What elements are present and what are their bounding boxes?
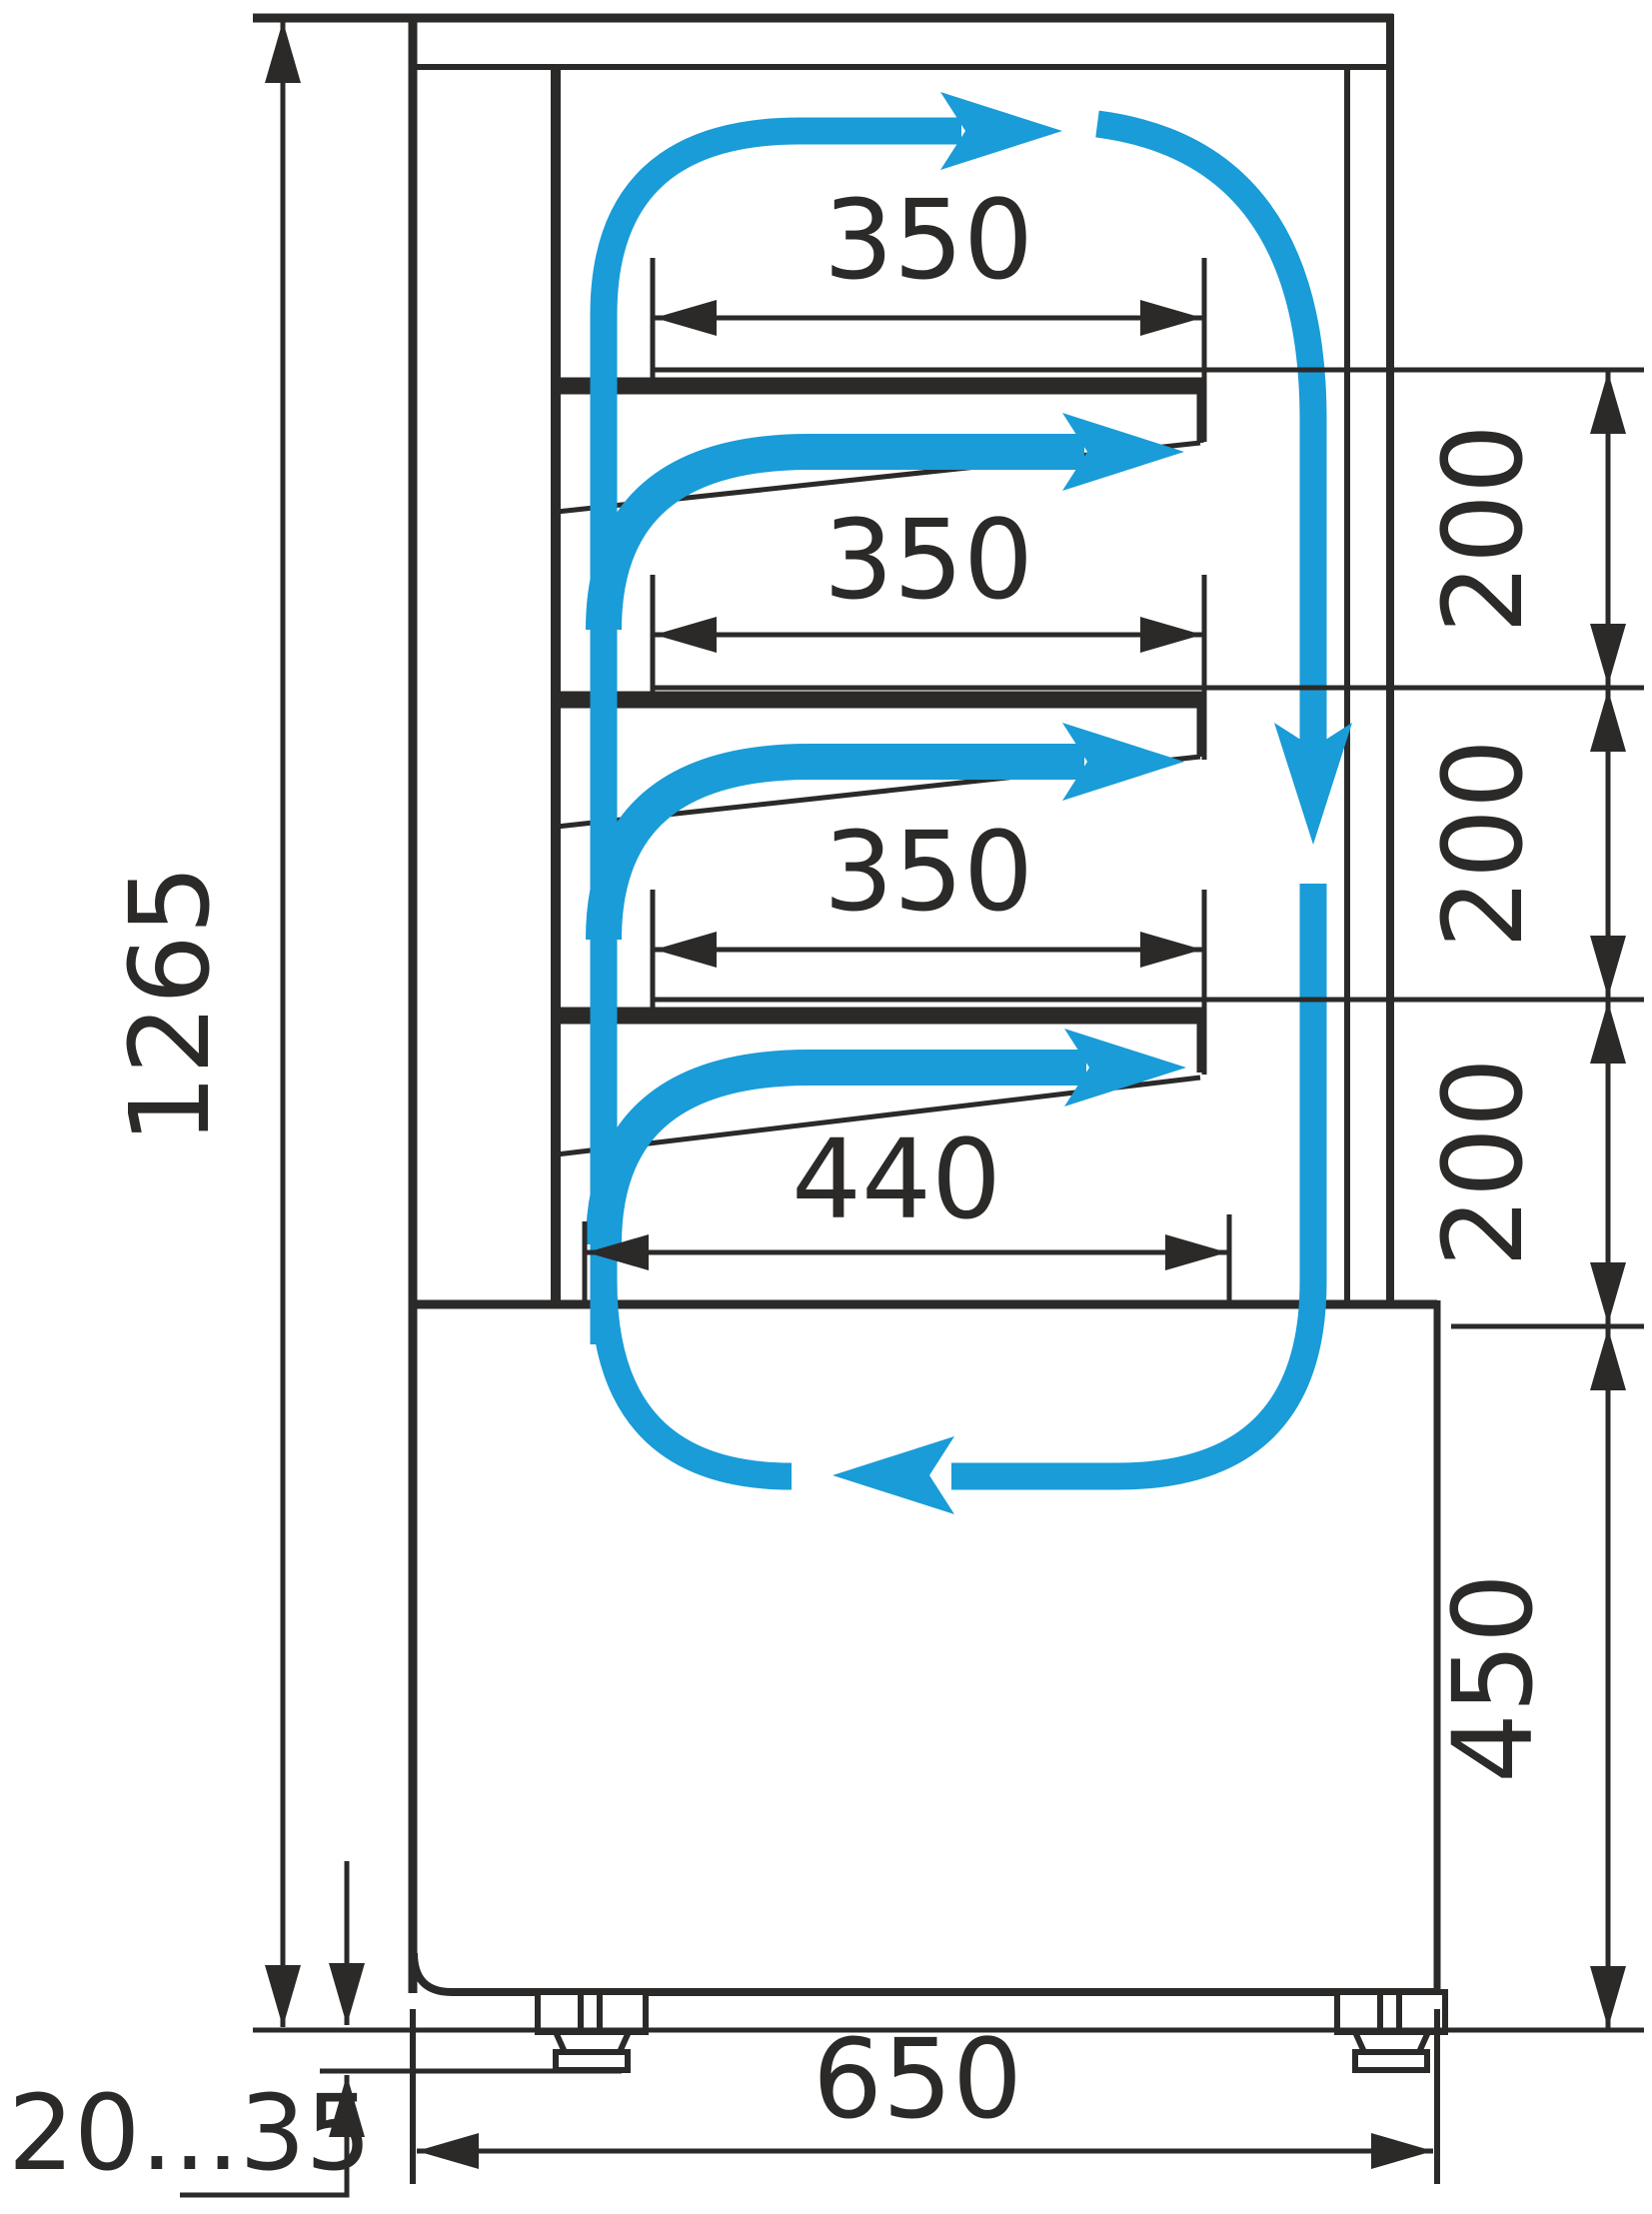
left-foot-pad [556, 2052, 628, 2070]
airflow-right-downdraft-lower [951, 884, 1313, 1476]
label-feet-range: 20...35 [8, 2072, 372, 2194]
label-shelf-middle-350: 350 [824, 496, 1033, 624]
airflow-left-return-bend [604, 1281, 792, 1476]
label-bottom-shelf-440: 440 [792, 1115, 1001, 1243]
airflow-return-arrow-icon [832, 1436, 954, 1514]
label-shelf-top-350: 350 [824, 176, 1033, 304]
label-shelf-lower-350: 350 [824, 808, 1033, 936]
label-depth-650: 650 [813, 2015, 1022, 2143]
label-spacing-top-200: 200 [1419, 424, 1547, 634]
drawing-canvas: 350 350 350 440 650 20...35 1265 200 200… [0, 0, 1652, 2214]
base-bottom-line [414, 1953, 1437, 1992]
right-foot-pad [1355, 2052, 1427, 2070]
left-foot-nut [538, 1992, 646, 2032]
cabinet-outline [253, 14, 1437, 1993]
label-spacing-middle-200: 200 [1419, 739, 1547, 949]
label-overall-height-1265: 1265 [106, 865, 234, 1144]
display-case-section-drawing: 350 350 350 440 650 20...35 1265 200 200… [0, 0, 1652, 2214]
label-base-height-450: 450 [1429, 1573, 1557, 1783]
right-foot-nut [1337, 1992, 1445, 2032]
label-spacing-lower-200: 200 [1419, 1058, 1547, 1267]
